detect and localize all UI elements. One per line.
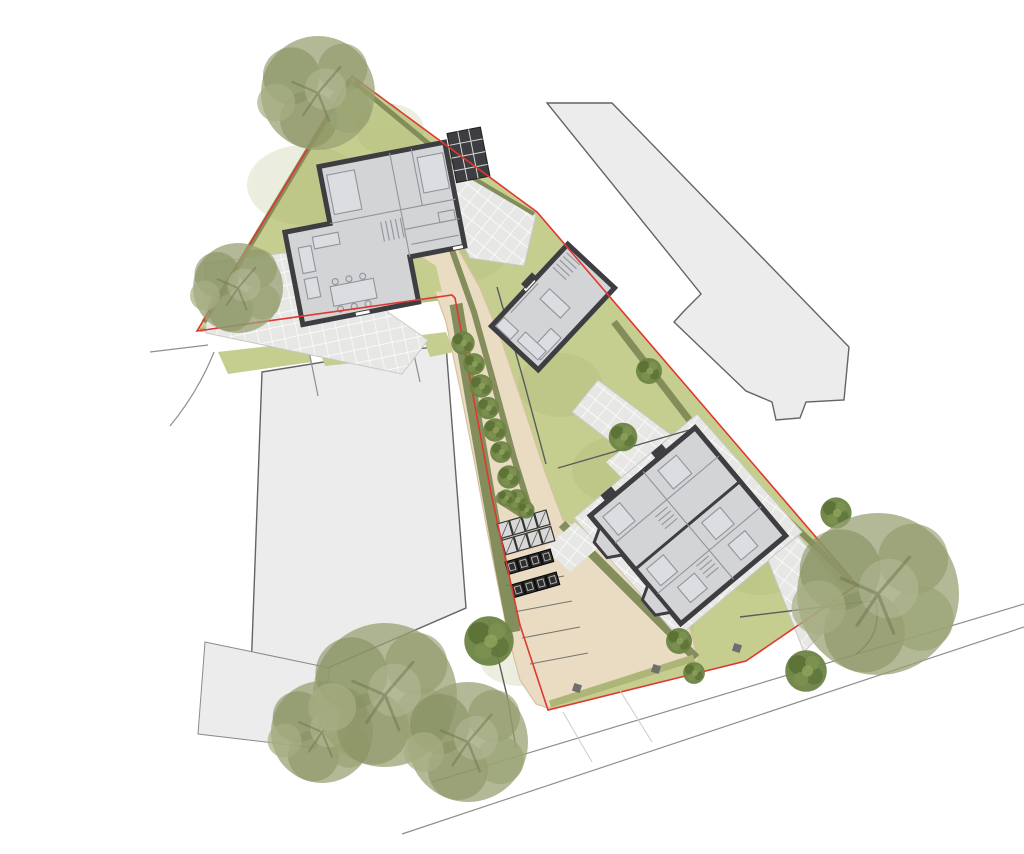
large-tree [464, 616, 513, 665]
shrub [517, 501, 534, 518]
street-tree [497, 465, 520, 488]
shrub [497, 489, 514, 506]
garden-tree [683, 662, 705, 684]
street-tree [469, 374, 492, 397]
site-plan-drawing [0, 0, 1024, 854]
garden-tree [636, 358, 662, 384]
site-plan-page [0, 0, 1024, 854]
garden-tree [666, 628, 692, 654]
large-tree [785, 650, 827, 692]
street-tree [451, 331, 474, 354]
street-tree [463, 353, 485, 375]
street-tree [490, 441, 512, 463]
street-tree [483, 418, 506, 441]
garden-tree [609, 423, 638, 452]
street-tree [477, 397, 499, 419]
